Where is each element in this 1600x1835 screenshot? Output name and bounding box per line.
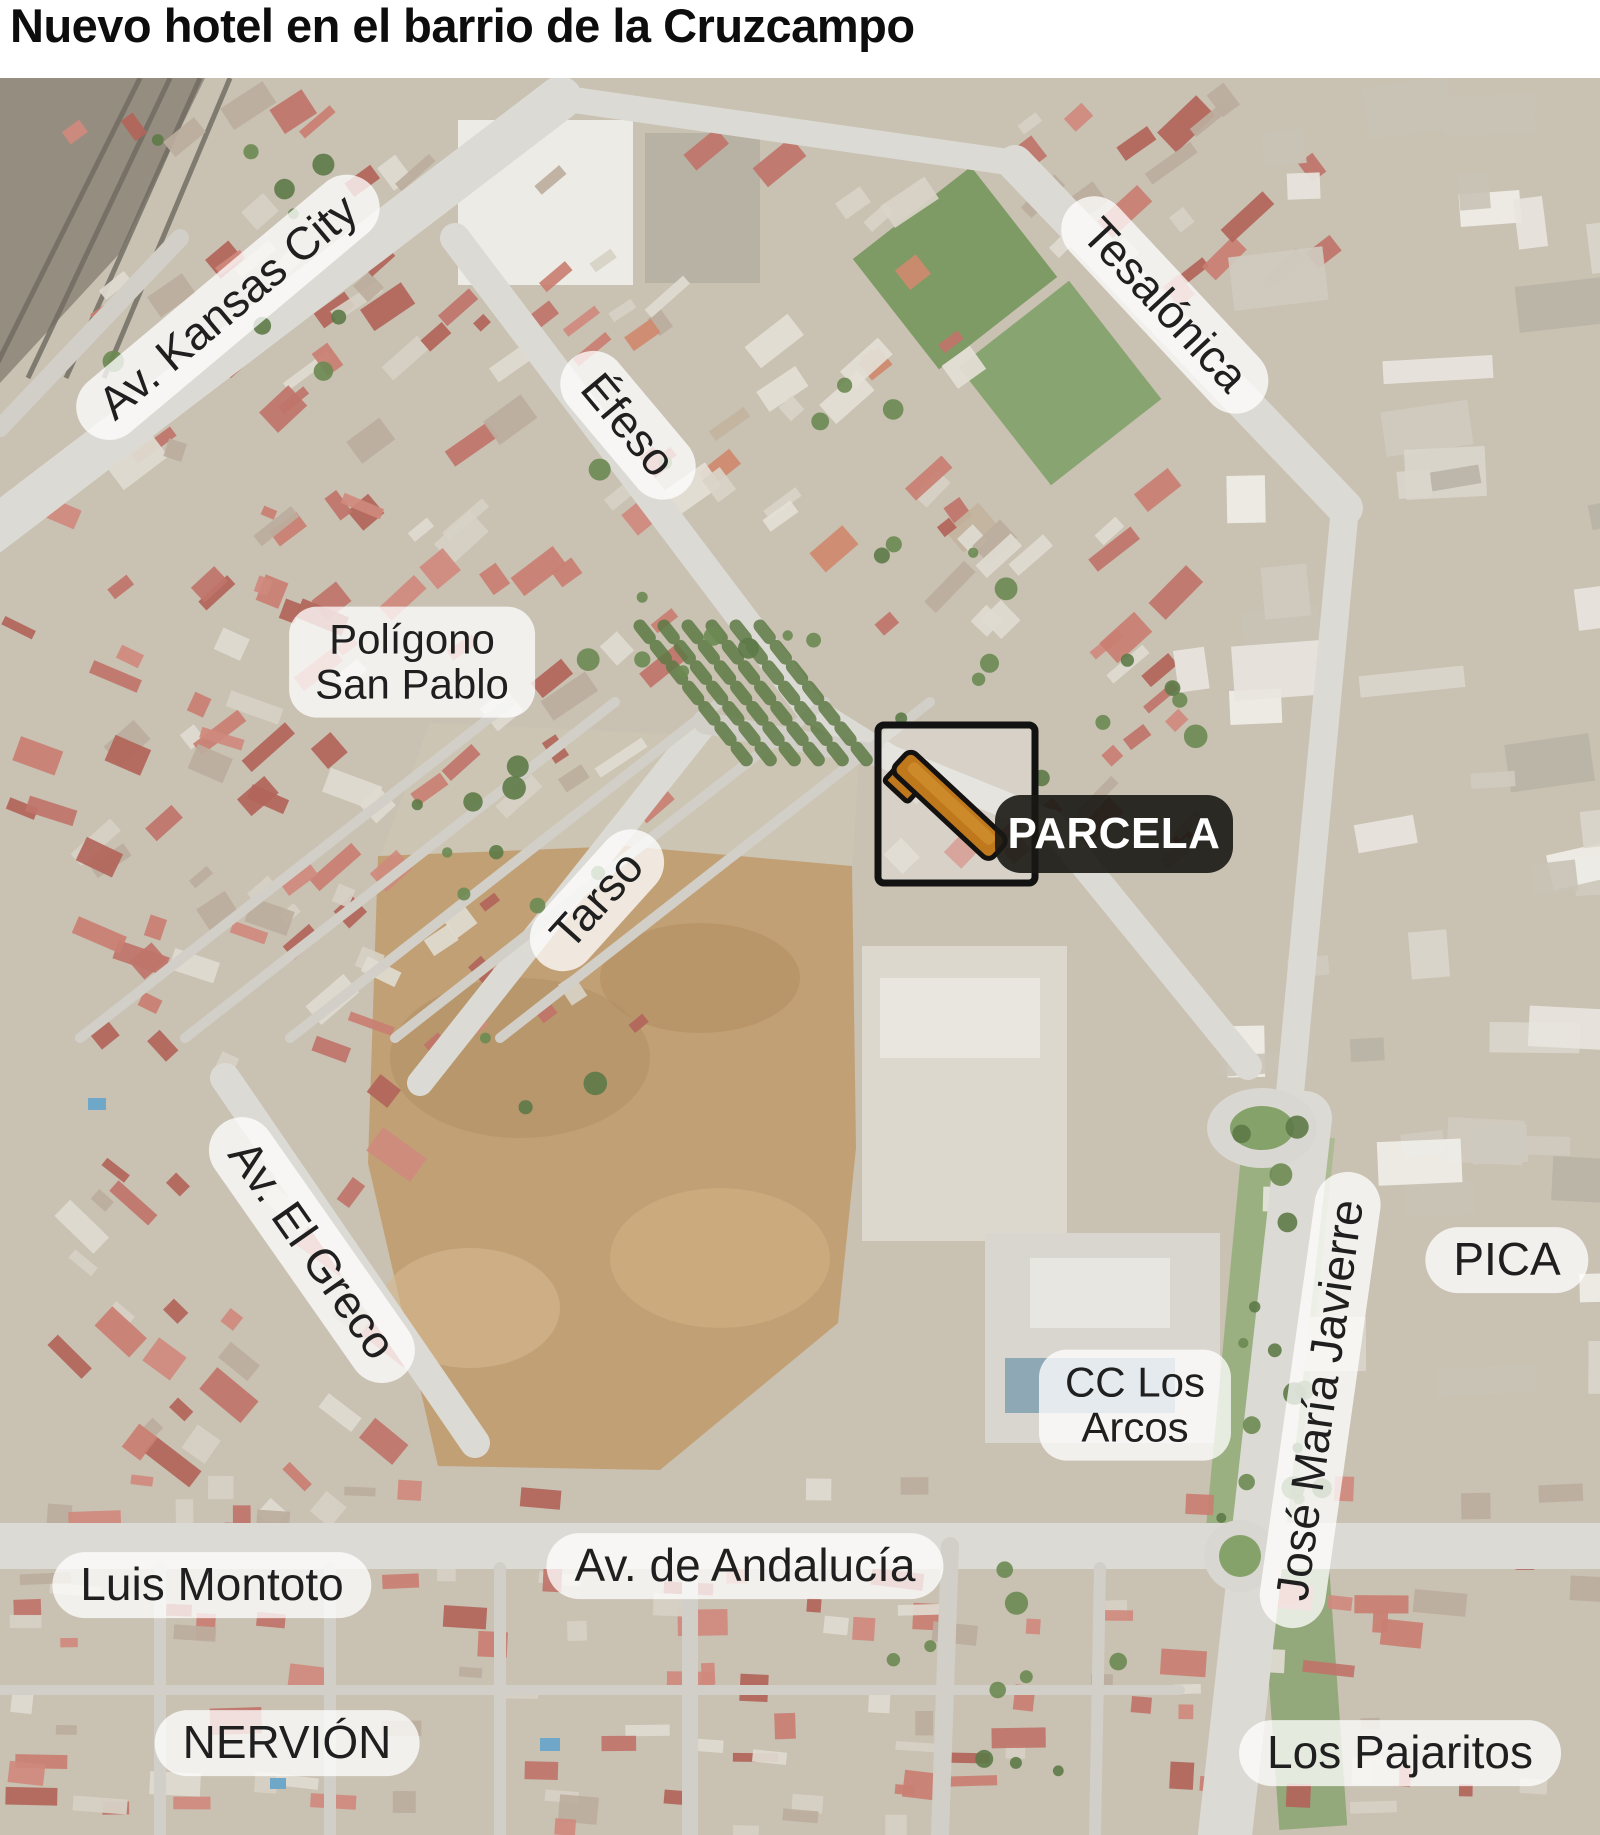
map-label-tarso: Tarso [516, 815, 678, 984]
map-label-efeso: Éfeso [547, 337, 709, 512]
map-label-jose-maria-javierre: José María Javierre [1255, 1168, 1384, 1633]
parcela-badge: PARCELA [995, 795, 1233, 873]
map-label-los-pajaritos: Los Pajaritos [1239, 1720, 1561, 1786]
map-label-tesalonica: Tesalónica [1048, 183, 1282, 428]
map-label-av-de-andalucia: Av. de Andalucía [546, 1533, 943, 1599]
map-label-pica: PICA [1425, 1227, 1588, 1293]
infographic-page: Nuevo hotel en el barrio de la Cruzcampo… [0, 0, 1600, 1835]
map-label-nervion: NERVIÓN [155, 1710, 420, 1776]
map-label-av-el-greco: Av. El Greco [196, 1104, 428, 1396]
map-labels-layer: PARCELA Av. Kansas CityTesalónicaÉfesoPo… [0, 78, 1600, 1835]
satellite-map: PARCELA Av. Kansas CityTesalónicaÉfesoPo… [0, 78, 1600, 1835]
map-label-av-kansas-city: Av. Kansas City [63, 161, 394, 453]
map-label-poligono-san-pablo: PolígonoSan Pablo [289, 607, 535, 718]
map-label-luis-montoto: Luis Montoto [52, 1552, 371, 1618]
page-title: Nuevo hotel en el barrio de la Cruzcampo [10, 0, 915, 57]
map-label-cc-los-arcos: CC LosArcos [1039, 1350, 1231, 1461]
